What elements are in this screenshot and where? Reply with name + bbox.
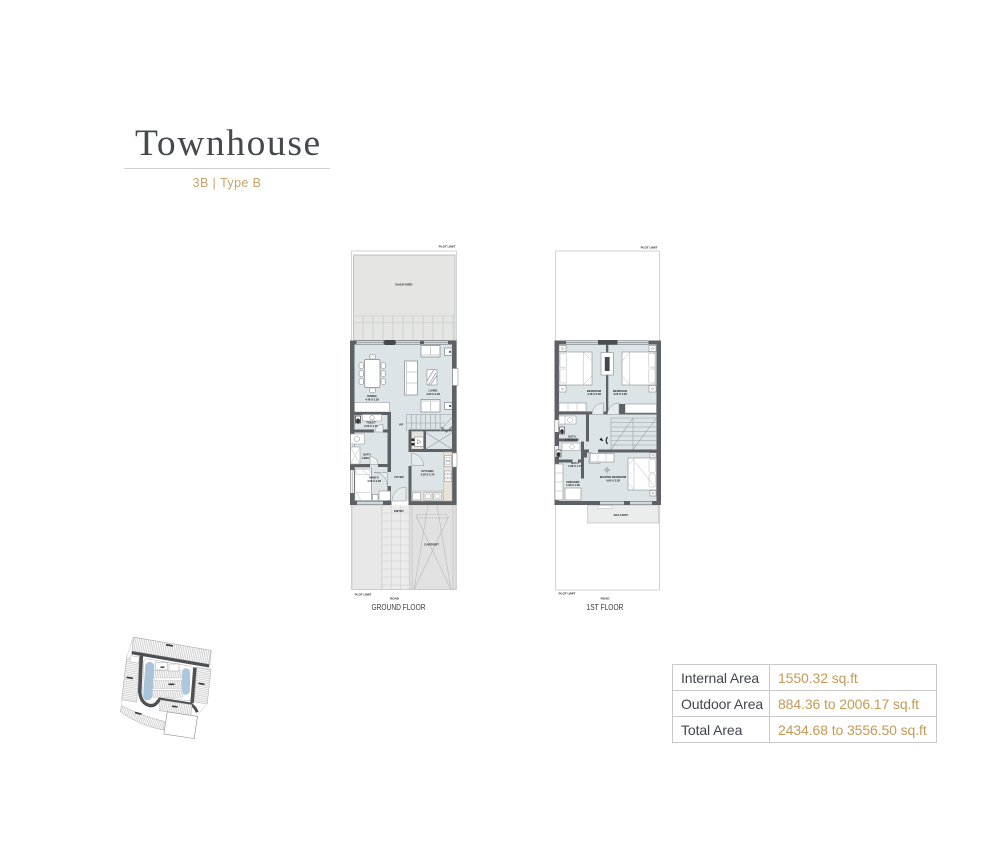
svg-text:4.60 X 3.28: 4.60 X 3.28 — [426, 392, 440, 396]
svg-text:4.48 X 3.28: 4.48 X 3.28 — [365, 397, 379, 401]
svg-text:4.28 X 2.28: 4.28 X 2.28 — [367, 479, 381, 483]
svg-text:ENTRY: ENTRY — [394, 509, 404, 513]
svg-text:4.48 X 3.28: 4.48 X 3.28 — [587, 392, 601, 396]
svg-text:FOYER: FOYER — [394, 475, 403, 479]
svg-text:BALCONY: BALCONY — [614, 513, 629, 517]
svg-text:BACKYARD: BACKYARD — [396, 283, 414, 287]
svg-text:CARPORT: CARPORT — [424, 543, 439, 547]
svg-text:2.20 X 1.20: 2.20 X 1.20 — [364, 424, 378, 428]
svg-text:1ST FLOOR: 1ST FLOOR — [587, 603, 624, 612]
svg-text:PLOT LIMIT: PLOT LIMIT — [641, 246, 658, 250]
svg-text:4.60 X 3.28: 4.60 X 3.28 — [606, 478, 620, 482]
svg-text:1.98 X 1.73: 1.98 X 1.73 — [568, 464, 582, 468]
svg-text:PLOT LIMIT: PLOT LIMIT — [439, 245, 456, 249]
svg-text:ROAD: ROAD — [390, 597, 400, 601]
svg-text:4.06 X 3.28: 4.06 X 3.28 — [613, 392, 627, 396]
svg-text:3.28 X 2.76: 3.28 X 2.76 — [421, 472, 435, 476]
svg-text:PLOT LIMIT: PLOT LIMIT — [559, 592, 576, 596]
svg-text:GROUND FLOOR: GROUND FLOOR — [372, 603, 426, 612]
svg-text:ROAD: ROAD — [601, 597, 611, 601]
svg-text:PLOT LIMIT: PLOT LIMIT — [355, 593, 372, 597]
svg-text:2.43 X 1.93: 2.43 X 1.93 — [565, 438, 579, 442]
svg-text:1.98 X 1.80: 1.98 X 1.80 — [566, 483, 580, 487]
svg-text:UP: UP — [399, 423, 403, 427]
